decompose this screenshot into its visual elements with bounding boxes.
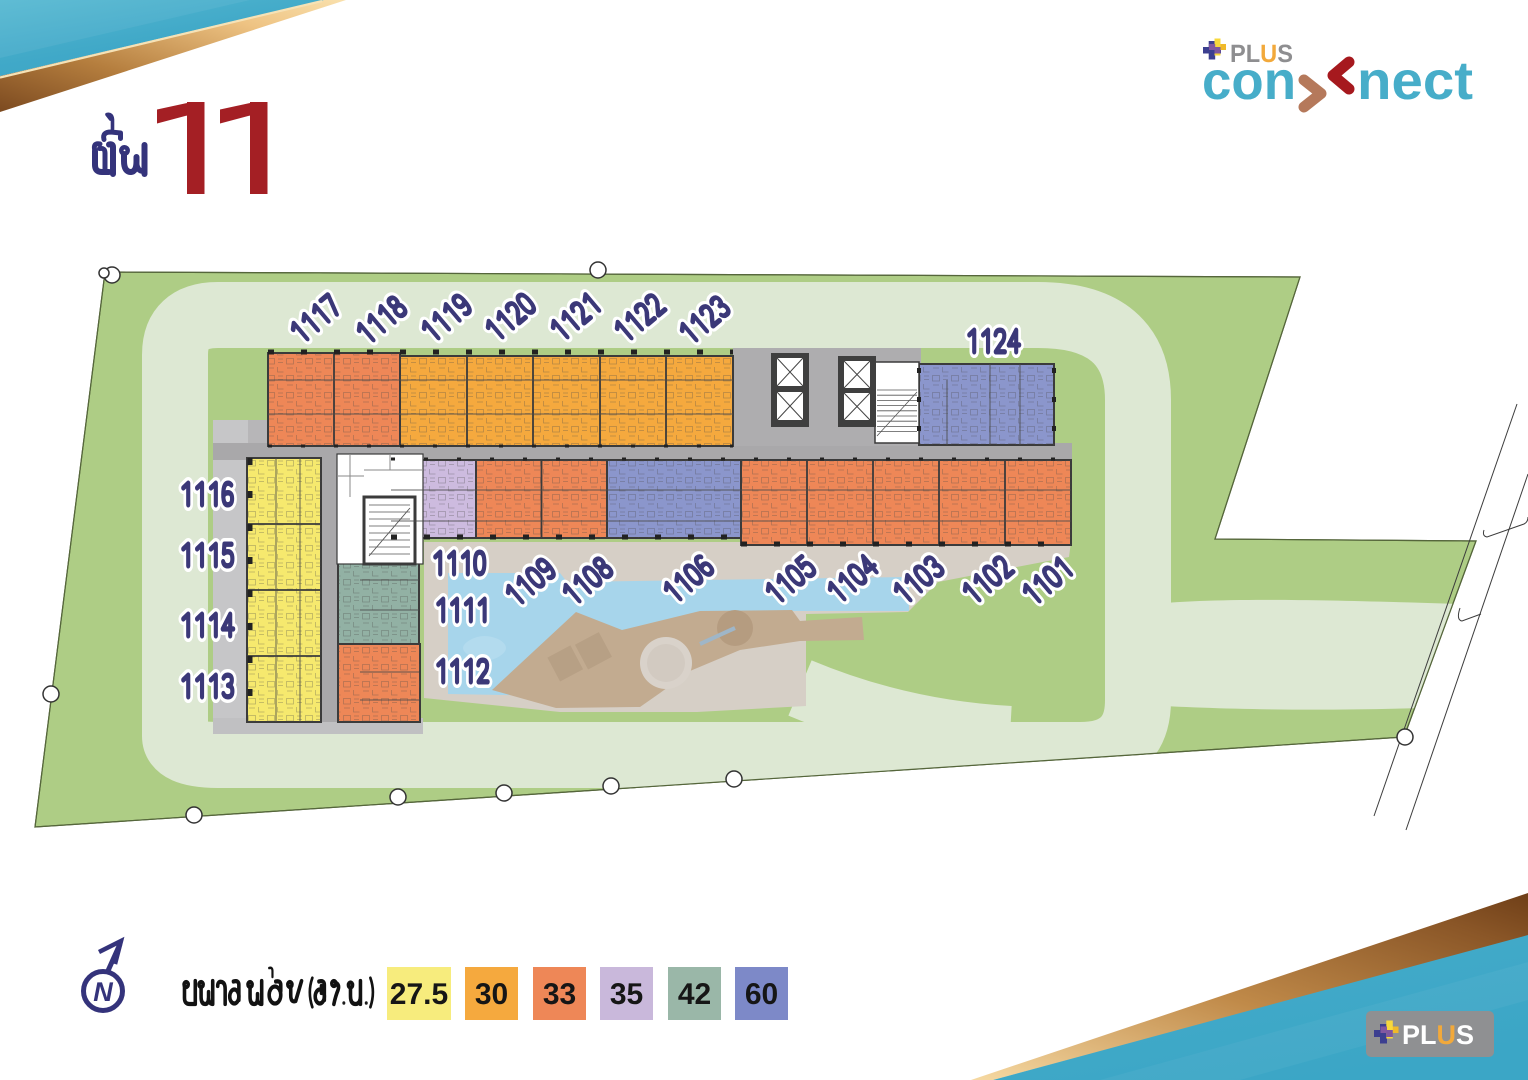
svg-text:33: 33 <box>543 978 576 1011</box>
svg-text:con: con <box>1202 51 1296 111</box>
svg-text:PLUS: PLUS <box>1402 1020 1474 1050</box>
svg-text:27.5: 27.5 <box>390 978 448 1011</box>
svg-text:35: 35 <box>610 978 643 1011</box>
svg-text:nect: nect <box>1357 51 1473 111</box>
svg-text:42: 42 <box>678 978 711 1011</box>
svg-text:30: 30 <box>475 978 508 1011</box>
svg-text:60: 60 <box>745 978 778 1011</box>
svg-text:N: N <box>93 977 113 1007</box>
